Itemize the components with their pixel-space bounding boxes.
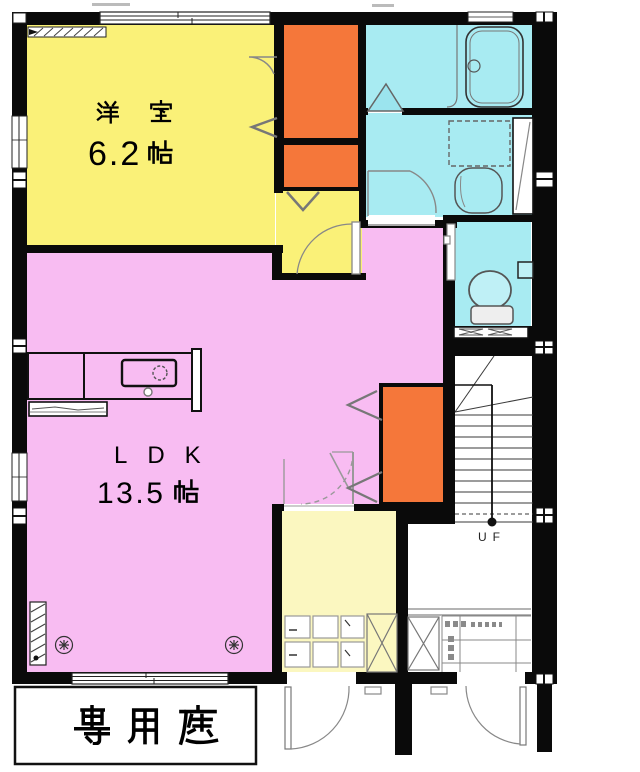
svg-text:LDK: LDK xyxy=(114,442,221,469)
svg-text:6.2: 6.2 xyxy=(88,135,141,173)
svg-text:13.5: 13.5 xyxy=(97,477,165,510)
svg-text:UF: UF xyxy=(478,530,506,544)
